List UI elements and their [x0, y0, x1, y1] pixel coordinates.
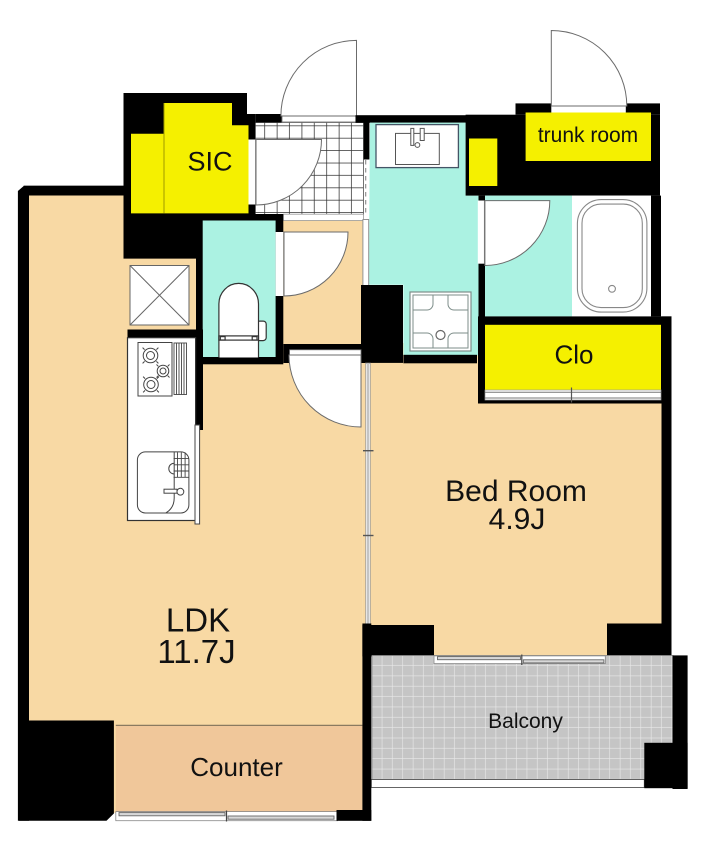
svg-text:SIC: SIC	[187, 147, 232, 177]
svg-text:Balcony: Balcony	[488, 710, 563, 733]
svg-text:Counter: Counter	[190, 752, 283, 782]
svg-text:Clo: Clo	[554, 340, 593, 370]
svg-text:11.7J: 11.7J	[157, 633, 235, 670]
svg-text:trunk room: trunk room	[538, 124, 638, 147]
svg-text:4.9J: 4.9J	[489, 503, 546, 536]
